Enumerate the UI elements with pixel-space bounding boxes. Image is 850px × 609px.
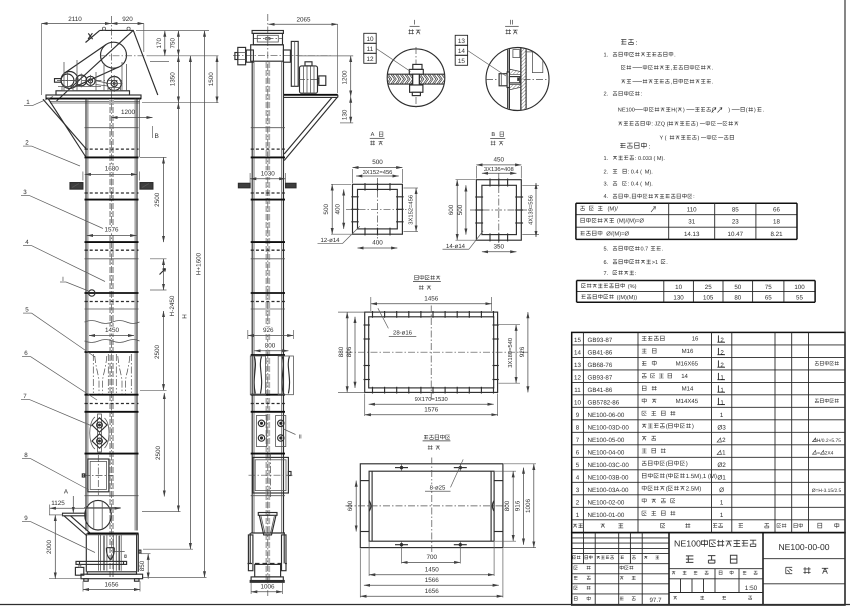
svg-text:M).: M). bbox=[657, 155, 666, 162]
svg-text:700: 700 bbox=[427, 554, 438, 561]
svg-text:1680: 1680 bbox=[105, 166, 120, 173]
svg-text:28-ø16: 28-ø16 bbox=[393, 330, 413, 337]
svg-text:GB68-76: GB68-76 bbox=[588, 362, 613, 369]
svg-text:NE100-03A-00: NE100-03A-00 bbox=[588, 487, 629, 494]
svg-text:12: 12 bbox=[574, 374, 581, 381]
svg-text:2: 2 bbox=[576, 499, 580, 506]
svg-text:Ø: Ø bbox=[719, 487, 724, 494]
svg-text:1: 1 bbox=[720, 374, 724, 381]
svg-text:18: 18 bbox=[773, 219, 780, 226]
svg-text:3.: 3. bbox=[604, 182, 609, 188]
svg-text:GB93-87: GB93-87 bbox=[588, 374, 613, 381]
svg-text:500: 500 bbox=[372, 159, 383, 166]
svg-text:M14: M14 bbox=[682, 386, 694, 393]
svg-text:11: 11 bbox=[574, 387, 581, 394]
svg-text:I: I bbox=[414, 20, 416, 27]
svg-text:(: ( bbox=[746, 107, 748, 114]
svg-text:NE100-00-00: NE100-00-00 bbox=[778, 542, 829, 552]
svg-text:7.: 7. bbox=[604, 271, 609, 277]
svg-text:5.: 5. bbox=[604, 246, 609, 252]
svg-text:2: 2 bbox=[722, 437, 726, 444]
svg-text:(%): (%) bbox=[628, 283, 637, 290]
svg-text:16: 16 bbox=[692, 336, 699, 343]
svg-text:1576: 1576 bbox=[424, 407, 439, 414]
svg-text:170: 170 bbox=[156, 37, 163, 48]
svg-text:6.: 6. bbox=[604, 260, 609, 266]
svg-text:3: 3 bbox=[576, 487, 580, 494]
svg-text:2500: 2500 bbox=[154, 345, 161, 360]
svg-text:880: 880 bbox=[338, 346, 345, 357]
svg-text:600: 600 bbox=[347, 500, 354, 511]
svg-text:1: 1 bbox=[720, 499, 724, 506]
svg-text:450: 450 bbox=[494, 157, 505, 164]
svg-text:2.5M): 2.5M) bbox=[686, 485, 701, 492]
svg-text:2: 2 bbox=[720, 349, 724, 356]
svg-text:5: 5 bbox=[25, 307, 29, 314]
svg-text:II: II bbox=[299, 435, 303, 441]
svg-text:5: 5 bbox=[576, 462, 580, 469]
svg-text:NE100: NE100 bbox=[618, 108, 635, 114]
svg-text:14: 14 bbox=[574, 349, 581, 356]
svg-text:9: 9 bbox=[24, 515, 28, 522]
svg-text:400: 400 bbox=[372, 240, 383, 247]
svg-text:1: 1 bbox=[26, 99, 30, 106]
svg-text:100: 100 bbox=[794, 284, 805, 291]
svg-text:12: 12 bbox=[366, 56, 374, 63]
svg-text:2500: 2500 bbox=[155, 446, 162, 461]
svg-text:806: 806 bbox=[346, 346, 353, 357]
svg-text:1200: 1200 bbox=[342, 70, 349, 85]
svg-text:1006: 1006 bbox=[260, 584, 275, 591]
svg-text:50: 50 bbox=[734, 284, 741, 291]
svg-text:14: 14 bbox=[458, 48, 466, 55]
svg-text:): ) bbox=[696, 121, 698, 128]
svg-text:M).: M). bbox=[645, 168, 654, 175]
svg-text:7: 7 bbox=[576, 437, 580, 444]
svg-text:1200: 1200 bbox=[121, 109, 136, 116]
svg-text:800: 800 bbox=[504, 500, 511, 511]
svg-text:1656: 1656 bbox=[104, 582, 119, 589]
svg-text:75: 75 bbox=[765, 284, 772, 291]
svg-text:NE100-06-00: NE100-06-00 bbox=[588, 412, 625, 419]
svg-text:(: ( bbox=[666, 485, 668, 492]
svg-text:1566: 1566 bbox=[425, 577, 440, 584]
svg-text:65: 65 bbox=[765, 295, 772, 302]
svg-text:Ø3: Ø3 bbox=[717, 424, 726, 431]
svg-text:13: 13 bbox=[458, 38, 466, 45]
svg-text:1: 1 bbox=[720, 412, 724, 419]
svg-text:15: 15 bbox=[574, 337, 581, 344]
svg-text:H(: H( bbox=[671, 107, 677, 114]
svg-text:1500: 1500 bbox=[208, 72, 215, 87]
svg-text:750: 750 bbox=[169, 37, 176, 48]
svg-text:1125: 1125 bbox=[51, 500, 65, 507]
svg-text:2000: 2000 bbox=[46, 540, 53, 555]
svg-text:1006: 1006 bbox=[525, 499, 532, 514]
svg-text:4X139=556: 4X139=556 bbox=[527, 195, 534, 225]
svg-text:NE100-03D-00: NE100-03D-00 bbox=[588, 424, 630, 431]
svg-text:10: 10 bbox=[675, 284, 682, 291]
svg-text:4: 4 bbox=[576, 474, 580, 481]
svg-text:3X152=456: 3X152=456 bbox=[408, 195, 415, 225]
svg-text:600: 600 bbox=[448, 204, 455, 215]
svg-text:1: 1 bbox=[720, 399, 724, 406]
svg-text:H+1600: H+1600 bbox=[196, 252, 203, 275]
svg-text:NE100-03B-00: NE100-03B-00 bbox=[588, 474, 629, 481]
svg-text:H-2450: H-2450 bbox=[169, 295, 176, 316]
svg-text:((M)(M)): ((M)(M)) bbox=[617, 294, 638, 301]
svg-text:2110: 2110 bbox=[68, 16, 82, 23]
svg-text:926: 926 bbox=[519, 346, 526, 357]
svg-text:B: B bbox=[155, 133, 159, 140]
svg-text:: 0.4 (: : 0.4 ( bbox=[628, 168, 642, 175]
svg-text:II: II bbox=[510, 20, 514, 27]
svg-text:(: ( bbox=[666, 461, 668, 468]
svg-text:0.7: 0.7 bbox=[641, 246, 649, 252]
svg-text:): ) bbox=[754, 107, 756, 114]
svg-text:1: 1 bbox=[720, 512, 724, 519]
svg-text:920: 920 bbox=[122, 16, 133, 23]
svg-text:1450: 1450 bbox=[425, 567, 440, 574]
svg-text:8: 8 bbox=[24, 452, 28, 459]
svg-text:12-ø14: 12-ø14 bbox=[320, 237, 340, 244]
svg-text:1.5M),1 (M): 1.5M),1 (M) bbox=[686, 473, 717, 480]
svg-text:(: ( bbox=[666, 473, 668, 480]
svg-text:1576: 1576 bbox=[104, 227, 119, 234]
svg-text:14-ø14: 14-ø14 bbox=[446, 243, 466, 250]
svg-text:130: 130 bbox=[342, 109, 349, 120]
svg-text:(M)/: (M)/ bbox=[608, 205, 619, 212]
svg-text:GB5782-86: GB5782-86 bbox=[588, 399, 620, 406]
svg-text:Ø=H-3.15/2.5: Ø=H-3.15/2.5 bbox=[812, 488, 842, 494]
svg-text:): ) bbox=[692, 423, 694, 430]
svg-text:: 0.033 (: : 0.033 ( bbox=[635, 155, 656, 162]
svg-text:3X152=456: 3X152=456 bbox=[363, 169, 393, 176]
svg-text:): ) bbox=[698, 135, 700, 142]
svg-text:): ) bbox=[686, 461, 688, 468]
svg-text:1: 1 bbox=[720, 387, 724, 394]
svg-text:110: 110 bbox=[687, 207, 697, 214]
svg-text:11: 11 bbox=[367, 46, 374, 53]
svg-text:6: 6 bbox=[24, 350, 28, 357]
svg-text:1656: 1656 bbox=[425, 588, 440, 595]
svg-text:NE100-02-00: NE100-02-00 bbox=[588, 499, 625, 506]
svg-text:: JZQ (: : JZQ ( bbox=[651, 121, 668, 128]
svg-text:M14X45: M14X45 bbox=[676, 398, 699, 405]
svg-text:105: 105 bbox=[703, 295, 714, 302]
svg-text:8: 8 bbox=[576, 424, 580, 431]
svg-text:85: 85 bbox=[732, 207, 739, 214]
svg-text:): ) bbox=[728, 107, 730, 114]
svg-text:9X170=1530: 9X170=1530 bbox=[415, 396, 448, 403]
svg-text:1456: 1456 bbox=[424, 296, 439, 303]
svg-text:H: H bbox=[181, 314, 188, 319]
svg-text:13: 13 bbox=[574, 362, 581, 369]
svg-text:10: 10 bbox=[574, 399, 581, 406]
svg-text:14.13: 14.13 bbox=[684, 231, 700, 238]
svg-text:1.: 1. bbox=[604, 156, 609, 162]
svg-text:=H/0.2+5.75: =H/0.2+5.75 bbox=[814, 438, 841, 444]
svg-text:15: 15 bbox=[458, 58, 466, 65]
svg-text:3X136=408: 3X136=408 bbox=[484, 166, 514, 173]
svg-text::: : bbox=[636, 40, 638, 47]
svg-text:8.21: 8.21 bbox=[770, 231, 783, 238]
svg-text:2: 2 bbox=[720, 362, 724, 369]
svg-text:400: 400 bbox=[335, 203, 342, 214]
svg-text:10.47: 10.47 bbox=[728, 231, 744, 238]
svg-text:1.: 1. bbox=[604, 52, 609, 58]
svg-text:2.: 2. bbox=[604, 169, 609, 175]
svg-text:: 0.4 (: : 0.4 ( bbox=[628, 181, 642, 188]
svg-text:4: 4 bbox=[25, 239, 29, 246]
svg-text:25: 25 bbox=[705, 284, 712, 291]
svg-text:66: 66 bbox=[773, 207, 780, 214]
svg-text:23: 23 bbox=[732, 219, 739, 226]
svg-text:A: A bbox=[371, 132, 375, 138]
svg-text:7: 7 bbox=[23, 393, 27, 400]
svg-text:130: 130 bbox=[673, 295, 684, 302]
svg-text:1: 1 bbox=[576, 512, 580, 519]
svg-text:6: 6 bbox=[576, 449, 580, 456]
svg-text:NE100-03C-00: NE100-03C-00 bbox=[588, 462, 630, 469]
svg-text:M16: M16 bbox=[682, 348, 694, 355]
svg-text:Ø2: Ø2 bbox=[717, 462, 726, 469]
svg-text:B: B bbox=[491, 132, 495, 138]
svg-text:3X180=540: 3X180=540 bbox=[507, 338, 514, 368]
svg-text:2500: 2500 bbox=[154, 192, 161, 207]
svg-text:Ø1: Ø1 bbox=[717, 474, 726, 481]
svg-text:2: 2 bbox=[25, 140, 29, 147]
svg-text:1350: 1350 bbox=[169, 72, 176, 87]
svg-text:=: = bbox=[817, 450, 820, 456]
svg-text:500: 500 bbox=[323, 204, 330, 215]
svg-text:350: 350 bbox=[494, 244, 505, 251]
svg-text:>1: >1 bbox=[652, 260, 658, 266]
svg-text:1450: 1450 bbox=[105, 327, 120, 334]
svg-text:2.: 2. bbox=[604, 92, 609, 98]
svg-text:14: 14 bbox=[681, 373, 688, 380]
svg-text:GB41-86: GB41-86 bbox=[588, 387, 613, 394]
svg-text:4.: 4. bbox=[604, 194, 609, 200]
svg-text:GB93-87: GB93-87 bbox=[588, 337, 613, 344]
svg-text:Y (: Y ( bbox=[660, 135, 667, 142]
svg-text:97.7: 97.7 bbox=[649, 597, 662, 604]
svg-text:NE100-04-00: NE100-04-00 bbox=[588, 449, 625, 456]
svg-text:8-ø25: 8-ø25 bbox=[430, 485, 446, 492]
svg-text:NE100-01-00: NE100-01-00 bbox=[588, 512, 625, 519]
svg-text:80: 80 bbox=[734, 295, 741, 302]
svg-text:(: ( bbox=[666, 423, 668, 430]
svg-text:1030: 1030 bbox=[261, 171, 276, 178]
svg-text:NE100: NE100 bbox=[674, 539, 701, 549]
svg-text:2X4: 2X4 bbox=[825, 450, 834, 456]
svg-text:850: 850 bbox=[139, 560, 146, 571]
svg-text:1: 1 bbox=[722, 449, 726, 456]
svg-text:M).: M). bbox=[645, 181, 654, 188]
svg-text:GB41-86: GB41-86 bbox=[588, 349, 613, 356]
svg-text:3: 3 bbox=[23, 189, 27, 196]
svg-text:(M)/(M)=Ø: (M)/(M)=Ø bbox=[617, 218, 644, 225]
svg-text::: : bbox=[649, 143, 651, 150]
svg-text:10: 10 bbox=[366, 36, 374, 43]
svg-text:926: 926 bbox=[263, 327, 274, 334]
svg-text:31: 31 bbox=[688, 219, 695, 226]
svg-text:55: 55 bbox=[796, 295, 803, 302]
svg-text:800: 800 bbox=[265, 342, 276, 349]
svg-text:9: 9 bbox=[576, 412, 580, 419]
svg-text:): ) bbox=[683, 107, 685, 114]
svg-text:NE100-05-00: NE100-05-00 bbox=[588, 437, 625, 444]
svg-text:Ø/(M)=Ø: Ø/(M)=Ø bbox=[606, 230, 629, 237]
svg-text:2065: 2065 bbox=[296, 17, 311, 24]
svg-text:916: 916 bbox=[515, 500, 522, 511]
svg-text:500: 500 bbox=[457, 204, 464, 215]
svg-text:1:50: 1:50 bbox=[745, 585, 758, 592]
svg-text:2: 2 bbox=[720, 337, 724, 344]
svg-text:M16X65: M16X65 bbox=[676, 361, 699, 368]
